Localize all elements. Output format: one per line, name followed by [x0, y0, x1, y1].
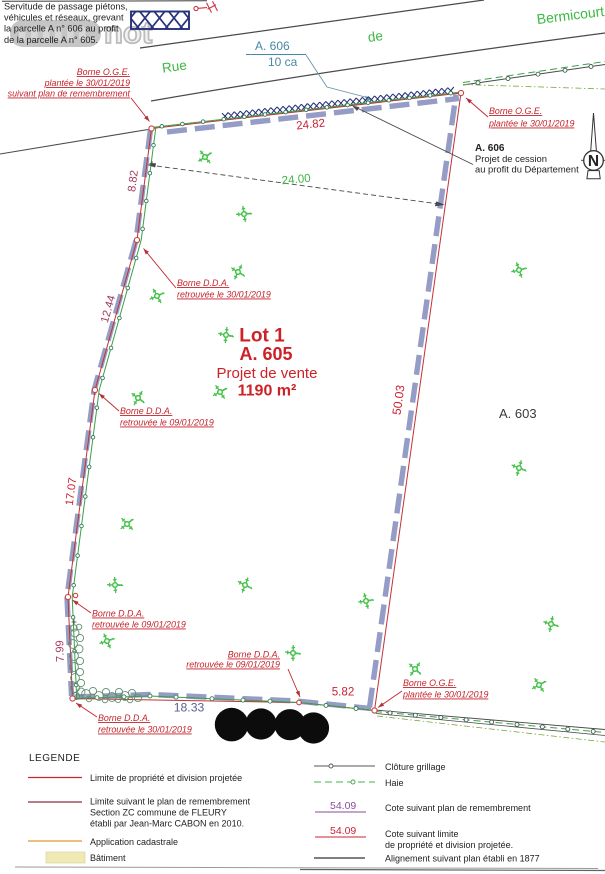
svg-text:de propriété et division proje: de propriété et division projetée.	[385, 840, 513, 850]
svg-text:retrouvée le 09/01/2019: retrouvée le 09/01/2019	[186, 660, 280, 670]
svg-text:LEGENDE: LEGENDE	[29, 753, 80, 764]
svg-text:Borne D.D.A.: Borne D.D.A.	[98, 713, 150, 723]
svg-text:Alignement suivant plan établi: Alignement suivant plan établi en 1877	[385, 854, 540, 864]
svg-text:7.99: 7.99	[54, 640, 67, 662]
svg-text:Rue: Rue	[161, 57, 188, 75]
svg-text:de: de	[367, 28, 384, 45]
svg-text:50.03: 50.03	[390, 384, 408, 416]
svg-text:Clôture grillage: Clôture grillage	[385, 762, 446, 772]
svg-text:véhicules et réseaux, grevant: véhicules et réseaux, grevant	[4, 13, 124, 23]
svg-text:Projet de vente: Projet de vente	[217, 365, 318, 382]
svg-text:Section ZC commune de FLEURY: Section ZC commune de FLEURY	[90, 808, 227, 818]
svg-text:Cote suivant limite: Cote suivant limite	[385, 829, 459, 839]
svg-text:1190 m²: 1190 m²	[238, 383, 297, 400]
svg-text:Borne D.D.A.: Borne D.D.A.	[120, 406, 172, 416]
svg-text:Servitude de passage piétons,: Servitude de passage piétons,	[4, 2, 128, 12]
svg-text:Borne D.D.A.: Borne D.D.A.	[228, 650, 280, 660]
svg-text:au profit du Département: au profit du Département	[475, 164, 579, 175]
svg-text:Limite de propriété et divisio: Limite de propriété et division projetée	[90, 773, 242, 783]
svg-text:établi par Jean-Marc CABON en: établi par Jean-Marc CABON en 2010.	[90, 819, 244, 829]
svg-text:54.09: 54.09	[330, 800, 356, 812]
svg-text:Borne O.G.E.: Borne O.G.E.	[77, 67, 130, 77]
svg-text:plantée le 30/01/2019: plantée le 30/01/2019	[402, 690, 488, 700]
svg-text:A. 606: A. 606	[255, 39, 290, 53]
svg-text:retrouvée le 09/01/2019: retrouvée le 09/01/2019	[92, 620, 186, 630]
svg-text:24.00: 24.00	[281, 172, 311, 187]
svg-text:A. 603: A. 603	[499, 406, 537, 421]
svg-text:plantée le 30/01/2019: plantée le 30/01/2019	[488, 119, 574, 129]
svg-text:retrouvée le 30/01/2019: retrouvée le 30/01/2019	[98, 725, 192, 735]
svg-text:Borne O.G.E.: Borne O.G.E.	[403, 678, 456, 688]
svg-text:Bermicourt: Bermicourt	[536, 3, 605, 27]
svg-text:retrouvée le 09/01/2019: retrouvée le 09/01/2019	[120, 418, 214, 428]
svg-text:8.82: 8.82	[126, 170, 141, 193]
svg-text:Borne D.D.A.: Borne D.D.A.	[177, 278, 229, 288]
svg-text:Cote suivant plan de remembrem: Cote suivant plan de remembrement	[385, 803, 531, 813]
svg-text:Projet de cession: Projet de cession	[475, 153, 547, 164]
svg-text:A. 605: A. 605	[239, 344, 292, 364]
svg-text:Borne O.G.E.: Borne O.G.E.	[489, 106, 542, 116]
svg-text:Bâtiment: Bâtiment	[90, 853, 126, 863]
svg-text:Application cadastrale: Application cadastrale	[90, 837, 178, 847]
svg-text:24.82: 24.82	[296, 117, 326, 133]
svg-text:Haie: Haie	[385, 778, 404, 788]
svg-text:plantée le 30/01/2019: plantée le 30/01/2019	[44, 78, 130, 88]
svg-text:Limite suivant le plan de reme: Limite suivant le plan de remembrement	[90, 797, 251, 807]
svg-text:N: N	[588, 153, 599, 170]
svg-text:18.33: 18.33	[174, 701, 205, 715]
svg-text:Borne D.D.A.: Borne D.D.A.	[92, 609, 144, 619]
svg-text:10 ca: 10 ca	[268, 55, 298, 69]
svg-text:retrouvée le 30/01/2019: retrouvée le 30/01/2019	[177, 290, 271, 300]
svg-text:5.82: 5.82	[332, 686, 355, 699]
svg-text:54.09: 54.09	[330, 825, 356, 837]
svg-text:suivant plan de remembrement: suivant plan de remembrement	[8, 89, 131, 99]
svg-text:de la parcelle A n° 605.: de la parcelle A n° 605.	[4, 35, 98, 45]
svg-text:la parcelle A n° 606 au profit: la parcelle A n° 606 au profit	[4, 24, 119, 34]
